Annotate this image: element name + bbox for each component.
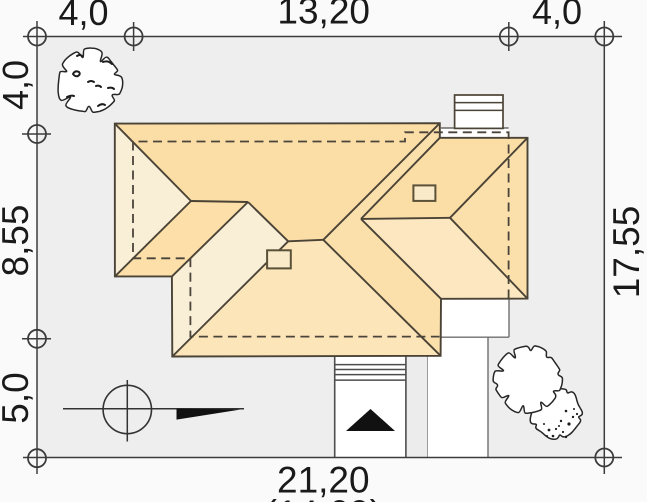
svg-text:5,0: 5,0 bbox=[0, 372, 36, 423]
svg-text:(14,60): (14,60) bbox=[265, 493, 382, 502]
svg-text:4,0: 4,0 bbox=[58, 0, 108, 33]
svg-text:17,55: 17,55 bbox=[606, 206, 647, 299]
svg-text:13,20: 13,20 bbox=[277, 0, 370, 32]
svg-text:4,0: 4,0 bbox=[532, 0, 582, 32]
svg-text:8,55: 8,55 bbox=[0, 204, 36, 276]
svg-text:4,0: 4,0 bbox=[0, 60, 36, 110]
